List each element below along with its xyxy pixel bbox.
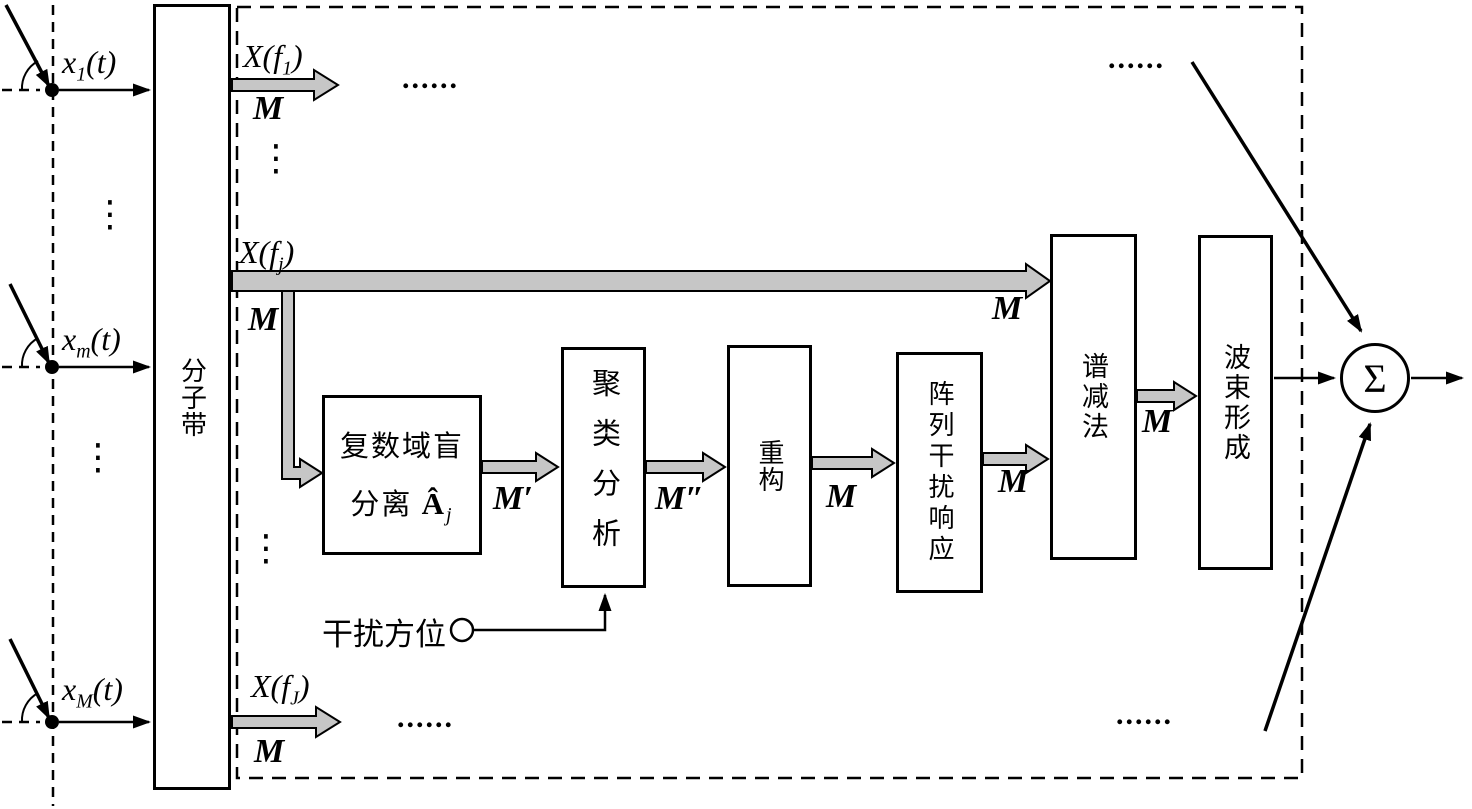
spectral-subtraction-box: 谱减法	[1050, 234, 1137, 560]
element3-incoming-ray-arrow	[10, 639, 49, 718]
input-x1-sub: 1	[76, 63, 86, 85]
count-M-f1: M	[253, 90, 283, 128]
spectral-subtraction-label: 谱减法	[1074, 352, 1113, 442]
count-M-fJ: M	[254, 733, 284, 771]
subband-decomposition-box: 分子带	[153, 4, 231, 790]
blind-separation-matrix-symbol: Â	[422, 486, 446, 521]
element1-sensor-dot	[45, 83, 59, 97]
output-XfJ-label: X(fJ)	[251, 668, 310, 710]
input-xm-var: x	[62, 321, 76, 357]
ellipsis-bottom-left: ......	[397, 701, 454, 735]
interference-to-clustering-arrow	[474, 595, 605, 630]
reconstruction-box: 重构	[727, 345, 812, 587]
subband-output-fj-long-fat-arrow	[232, 264, 1050, 298]
sigma-symbol: Σ	[1363, 355, 1386, 402]
count-M-reconstruction: M	[826, 478, 856, 516]
blind-separation-label-line2: 分离 Âj	[350, 481, 453, 527]
count-M-double-prime: M″	[655, 480, 704, 518]
ellipsis-top-left: ......	[402, 62, 459, 96]
count-M-prime: M′	[493, 480, 533, 518]
input-x1-label: x1(t)	[62, 44, 116, 86]
beamforming-box: 波束形成	[1198, 235, 1273, 570]
output-Xf1-fn: X(f	[243, 38, 282, 74]
vertical-ellipsis-region-upper: ⋮	[258, 141, 294, 177]
ellipsis-top-right: ......	[1108, 42, 1165, 76]
ellipsis-bottom-right: ......	[1116, 698, 1173, 732]
output-XfJ-sub: J	[290, 687, 299, 709]
subband-decomposition-label: 分子带	[174, 357, 211, 438]
clustering-box: 聚类分析	[561, 347, 646, 588]
array-interference-response-label: 阵列干扰响应	[921, 380, 958, 566]
blind-separation-box: 复数域盲 分离 Âj	[322, 395, 482, 555]
input-xM-label: xM(t)	[62, 671, 123, 713]
lower-subband-path-to-summer-arrow	[1265, 424, 1370, 731]
element2-sensor-dot	[45, 360, 59, 374]
beamforming-label: 波束形成	[1216, 343, 1255, 463]
summer-node: Σ	[1340, 343, 1410, 413]
output-Xf1-close: )	[292, 38, 303, 74]
output-Xf1-sub: 1	[282, 57, 292, 79]
input-x1-var: x	[62, 44, 76, 80]
count-M-branch: M	[248, 301, 278, 339]
vertical-ellipsis-array-lower: ⋮	[80, 440, 116, 476]
element1-angle-arc	[22, 61, 38, 90]
output-Xfj-label: X(fj)	[239, 234, 294, 276]
array-interference-response-box: 阵列干扰响应	[896, 352, 983, 593]
reconstruction-to-array-fat-arrow	[812, 449, 894, 477]
clustering-to-reconstruction-fat-arrow	[646, 453, 725, 481]
interference-direction-node-circle	[451, 619, 473, 641]
input-xM-sub: M	[76, 690, 93, 712]
element1-incoming-ray-arrow	[6, 5, 49, 86]
vertical-ellipsis-array-upper: ⋮	[92, 197, 128, 233]
subband-output-fJ-fat-arrow	[232, 707, 340, 737]
input-x1-arg: (t)	[86, 44, 116, 80]
element2-angle-arc	[22, 338, 38, 367]
output-XfJ-close: )	[299, 668, 310, 704]
count-M-array-response: M	[998, 463, 1028, 501]
blind-separation-label-line1: 复数域盲	[340, 423, 464, 465]
input-xM-var: x	[62, 671, 76, 707]
input-xm-label: xm(t)	[62, 321, 121, 363]
vertical-ellipsis-region-lower: ⋮	[248, 531, 284, 567]
blindsep-to-clustering-fat-arrow	[482, 453, 558, 481]
element3-sensor-dot	[45, 715, 59, 729]
output-Xf1-label: X(f1)	[243, 38, 303, 80]
blind-separation-matrix-subscript: j	[446, 504, 454, 526]
reconstruction-label: 重构	[751, 439, 788, 493]
input-xM-arg: (t)	[93, 671, 123, 707]
output-XfJ-fn: X(f	[251, 668, 290, 704]
output-Xfj-close: )	[284, 234, 295, 270]
element2-incoming-ray-arrow	[10, 284, 49, 363]
clustering-label: 聚类分析	[583, 368, 625, 568]
element3-angle-arc	[22, 693, 38, 722]
count-M-spectral: M	[1142, 403, 1172, 441]
input-xm-sub: m	[76, 340, 90, 362]
block-diagram: 分子带 复数域盲 分离 Âj 聚类分析 重构 阵列干扰响应 谱减法 波束形成 Σ…	[0, 0, 1472, 809]
output-Xfj-fn: X(f	[239, 234, 278, 270]
interference-direction-label: 干扰方位	[322, 609, 446, 654]
blind-separation-label-line2-text: 分离	[350, 489, 421, 521]
count-M-long-arrow: M	[992, 290, 1022, 328]
fj-branch-down-fat-arrow	[282, 291, 322, 487]
input-xm-arg: (t)	[91, 321, 121, 357]
